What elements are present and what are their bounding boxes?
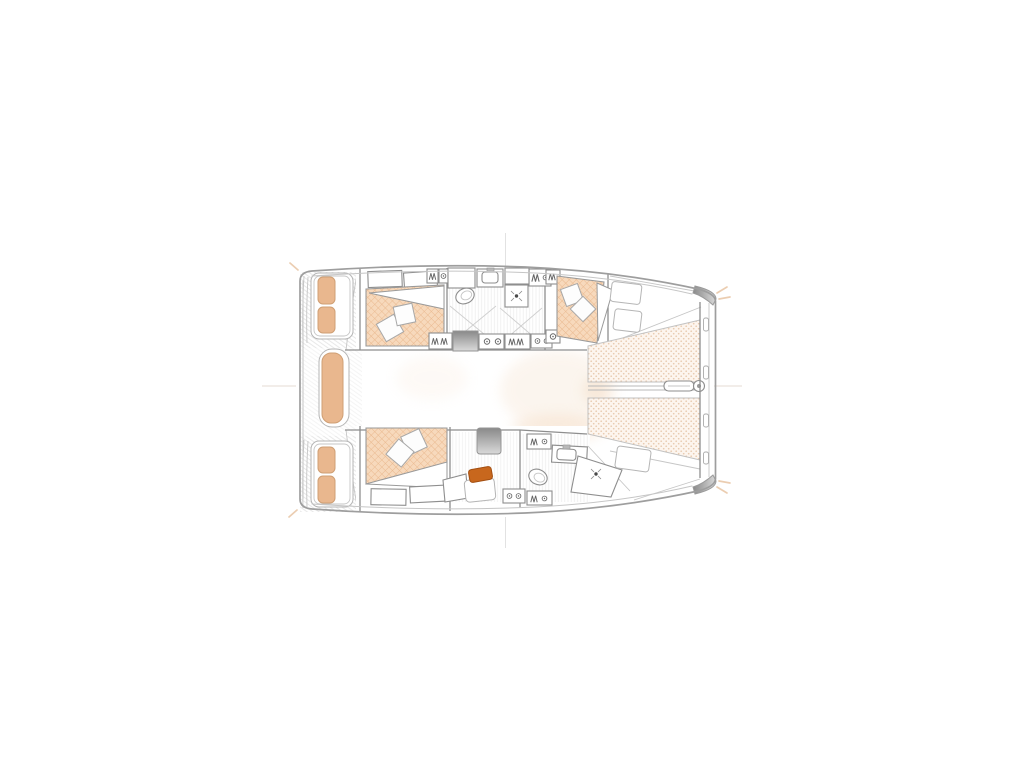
shower-drain <box>515 294 518 297</box>
companionway-steps <box>477 428 501 454</box>
glow-blob <box>396 356 468 400</box>
shelf-locker <box>503 489 525 503</box>
beam-slot <box>704 414 709 427</box>
pillow <box>393 303 416 326</box>
beam-slot <box>704 318 709 331</box>
port-forward-cabin <box>546 270 642 343</box>
cabinet <box>505 268 529 284</box>
hanging-locker <box>527 434 551 449</box>
starboard-aft-cabin <box>366 428 447 505</box>
shower-drain <box>594 472 597 475</box>
tip-accent-marks <box>717 481 730 493</box>
faucet <box>563 445 570 449</box>
aft-bench-cushion <box>322 353 343 423</box>
tip-accent-marks <box>717 287 730 299</box>
transom-cushion <box>318 307 335 333</box>
transom-cushion <box>318 447 335 473</box>
hanging-locker <box>527 491 552 505</box>
transom-cushion <box>318 476 335 503</box>
transom-cushion <box>318 277 335 304</box>
shelf <box>410 485 447 503</box>
catamaran-floorplan <box>0 0 1024 768</box>
beam-slot <box>704 366 709 379</box>
shelf <box>371 489 406 506</box>
bow-shelf <box>615 446 652 473</box>
sink-basin <box>482 272 498 283</box>
sink-basin <box>557 449 577 461</box>
beam-slot <box>704 452 709 464</box>
bow-shelf <box>610 281 642 305</box>
bow-shelf <box>613 308 642 332</box>
companionway-steps <box>453 331 478 351</box>
shower-tray <box>571 456 622 497</box>
stern-accent-marks <box>289 263 298 517</box>
